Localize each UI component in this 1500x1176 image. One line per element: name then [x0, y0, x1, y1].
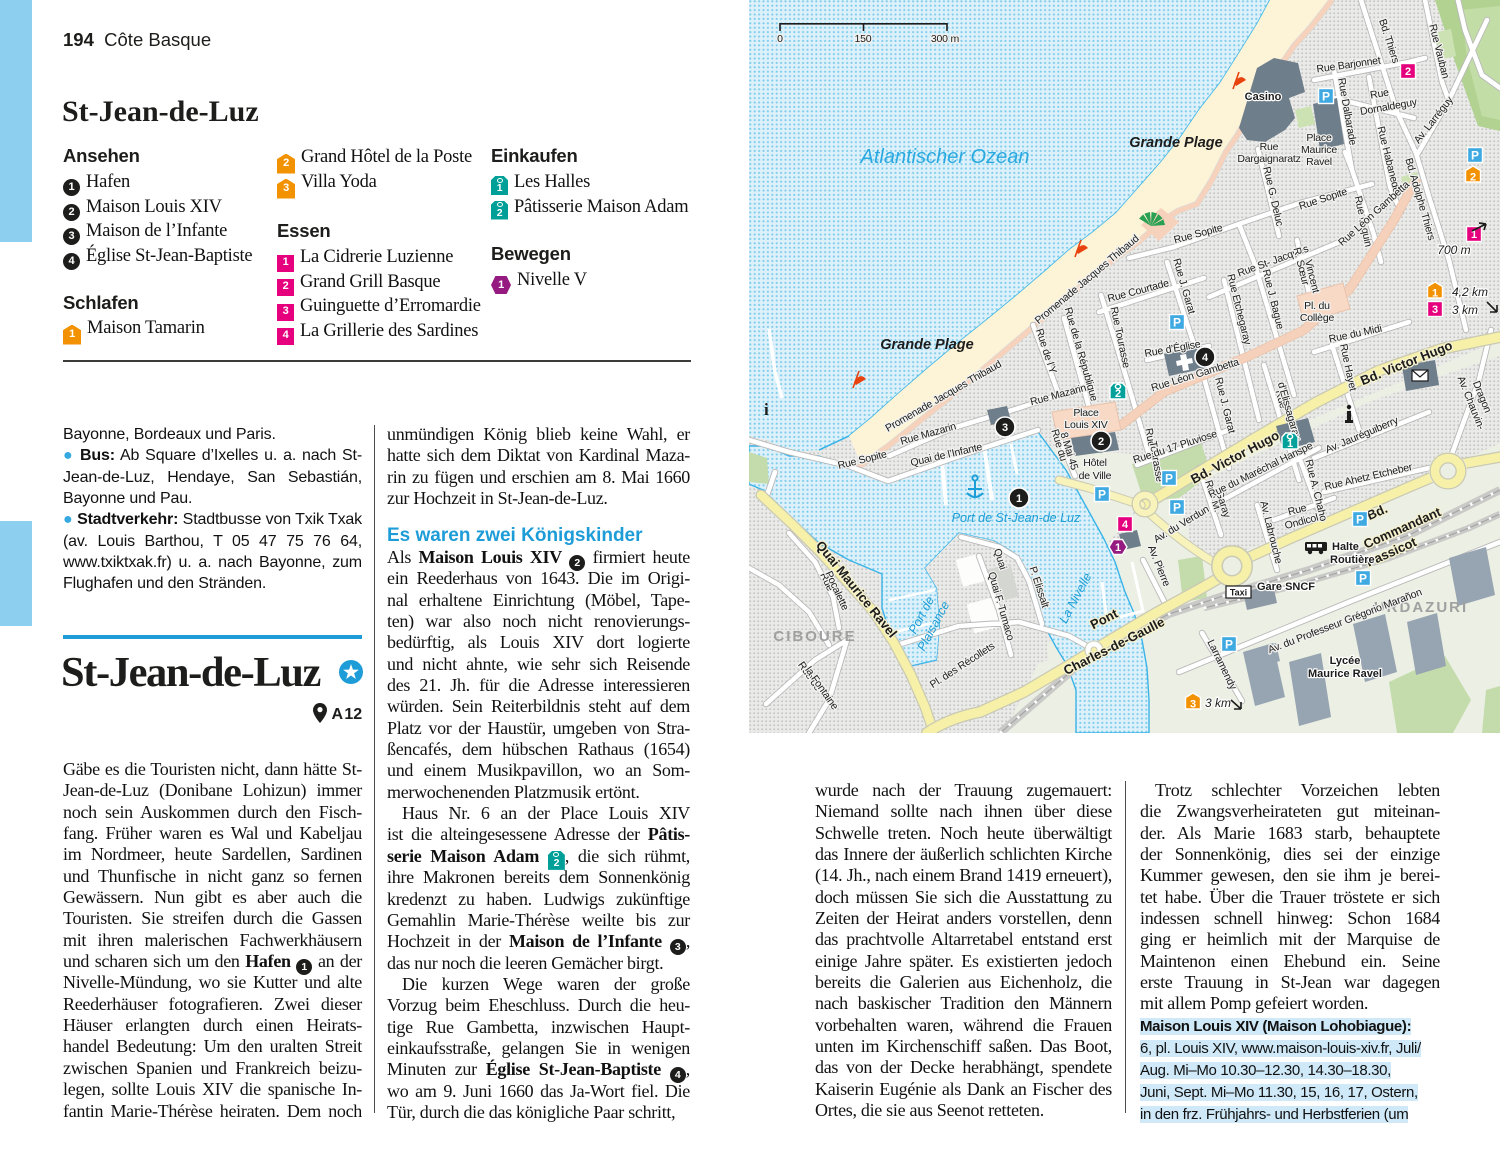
svg-text:1: 1 [1115, 542, 1121, 554]
svg-text:Lycée: Lycée [1330, 655, 1361, 667]
svg-text:3 km: 3 km [1452, 303, 1478, 317]
svg-text:1: 1 [1432, 288, 1438, 300]
svg-text:i: i [764, 400, 769, 419]
svg-text:4: 4 [1122, 519, 1129, 531]
svg-text:de Ville: de Ville [1079, 470, 1112, 482]
svg-text:Louis XIV: Louis XIV [1064, 419, 1107, 431]
svg-text:1: 1 [1016, 493, 1022, 505]
svg-text:P: P [1173, 316, 1181, 330]
svg-text:CIBOURE: CIBOURE [773, 628, 856, 645]
svg-text:Place: Place [1306, 132, 1332, 144]
svg-text:P: P [1165, 472, 1173, 486]
svg-text:3 km: 3 km [1205, 696, 1231, 710]
svg-text:Place: Place [1073, 407, 1099, 419]
svg-text:Grande Plage: Grande Plage [880, 337, 973, 353]
svg-text:2: 2 [1470, 172, 1476, 184]
svg-text:P: P [1098, 488, 1106, 502]
svg-text:150: 150 [855, 33, 872, 45]
svg-text:0: 0 [777, 33, 783, 45]
svg-text:2: 2 [1098, 436, 1104, 448]
svg-text:700 m: 700 m [1437, 243, 1470, 257]
svg-text:Maurice Ravel: Maurice Ravel [1308, 668, 1382, 680]
svg-text:2: 2 [1405, 66, 1411, 78]
svg-text:Hôtel: Hôtel [1083, 457, 1107, 469]
svg-text:300 m: 300 m [931, 33, 960, 45]
svg-text:P: P [1471, 149, 1479, 163]
svg-text:Atlantischer Ozean: Atlantischer Ozean [860, 146, 1030, 168]
svg-text:Casino: Casino [1245, 91, 1282, 103]
svg-text:1: 1 [1287, 438, 1293, 450]
svg-text:4,2 km: 4,2 km [1452, 285, 1488, 299]
svg-text:Collège: Collège [1300, 312, 1335, 324]
svg-text:P: P [1173, 501, 1181, 515]
svg-text:Grande Plage: Grande Plage [1129, 135, 1222, 151]
svg-text:Gare SNCF: Gare SNCF [1257, 581, 1315, 593]
svg-text:Taxi: Taxi [1230, 588, 1247, 598]
svg-text:4: 4 [1202, 352, 1209, 364]
svg-text:Ravel: Ravel [1306, 156, 1332, 168]
svg-text:3: 3 [1190, 699, 1196, 711]
svg-text:2: 2 [1115, 388, 1121, 400]
svg-text:Maurice: Maurice [1301, 144, 1337, 156]
svg-text:P: P [1359, 572, 1367, 586]
svg-text:P: P [1322, 90, 1330, 104]
svg-text:Pl. du: Pl. du [1304, 300, 1330, 312]
svg-text:Port de St-Jean-de Luz: Port de St-Jean-de Luz [952, 511, 1081, 525]
svg-text:P: P [1356, 513, 1364, 527]
svg-text:Rue: Rue [1260, 141, 1279, 153]
svg-text:P: P [1225, 638, 1233, 652]
svg-text:Dargaignaratz: Dargaignaratz [1237, 153, 1300, 165]
svg-text:Routière: Routière [1330, 554, 1375, 566]
svg-text:3: 3 [1002, 422, 1008, 434]
svg-text:Halte: Halte [1332, 541, 1359, 553]
svg-text:3: 3 [1432, 304, 1438, 316]
